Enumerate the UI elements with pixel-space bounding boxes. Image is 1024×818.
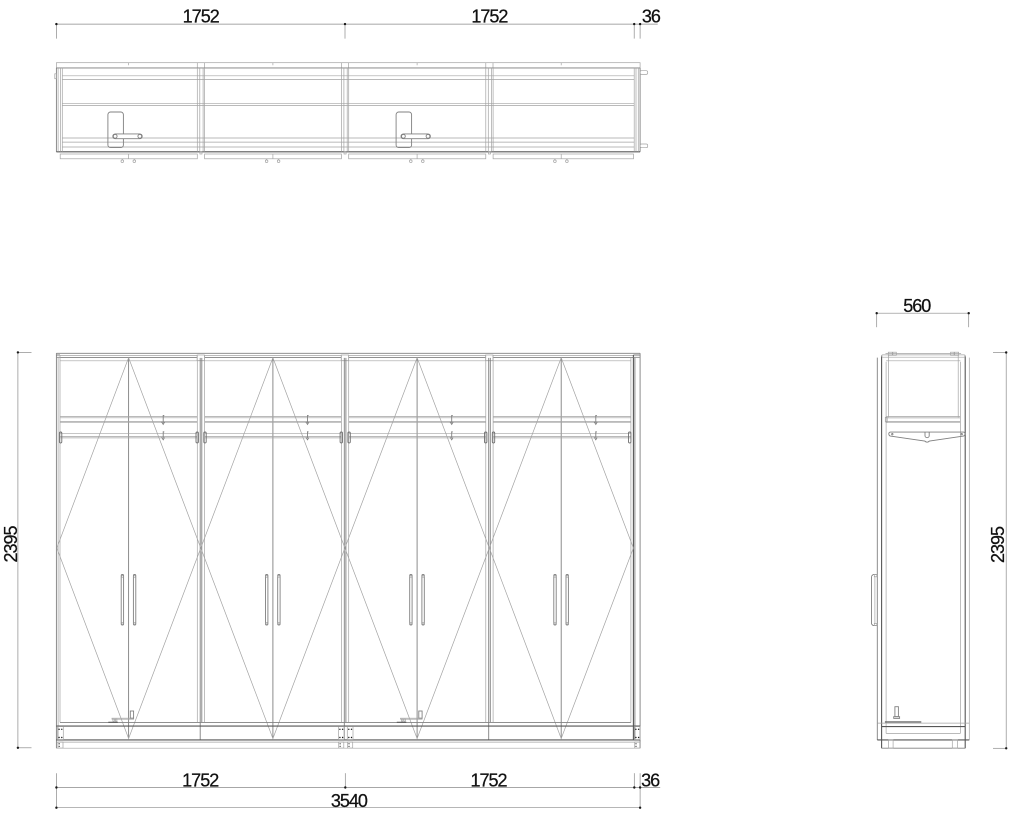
svg-text:1752: 1752 — [182, 770, 219, 790]
svg-text:36: 36 — [641, 770, 660, 790]
svg-text:36: 36 — [642, 7, 661, 27]
svg-text:2395: 2395 — [1, 525, 21, 562]
svg-text:1752: 1752 — [183, 7, 220, 27]
svg-text:1752: 1752 — [471, 7, 508, 27]
svg-text:3540: 3540 — [331, 791, 368, 811]
svg-text:2395: 2395 — [988, 526, 1008, 563]
svg-text:560: 560 — [903, 296, 931, 316]
svg-text:1752: 1752 — [470, 770, 507, 790]
